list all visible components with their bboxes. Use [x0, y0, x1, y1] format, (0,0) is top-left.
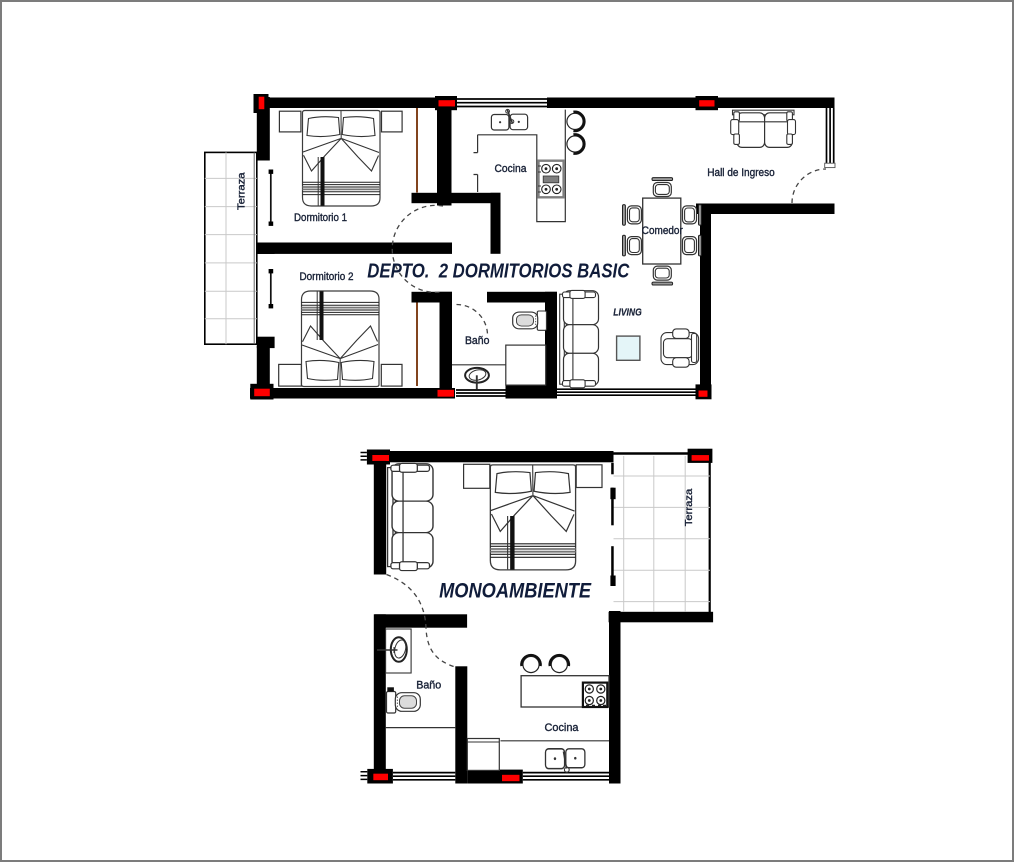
svg-text:MONOAMBIENTE: MONOAMBIENTE: [439, 579, 592, 602]
svg-text:Dormitorio 1: Dormitorio 1: [294, 212, 347, 224]
svg-text:Hall de Ingreso: Hall de Ingreso: [707, 167, 775, 179]
svg-text:Cocina: Cocina: [545, 722, 580, 734]
svg-text:Cocina: Cocina: [495, 163, 528, 175]
svg-text:Comedor: Comedor: [642, 225, 683, 237]
svg-text:Dormitorio 2: Dormitorio 2: [300, 271, 354, 283]
svg-text:Baño: Baño: [416, 679, 441, 691]
svg-text:Terraza: Terraza: [236, 172, 248, 210]
svg-text:DEPTO. 2 DORMITORIOS BASIC: DEPTO. 2 DORMITORIOS BASIC: [367, 259, 630, 282]
svg-text:Terraza: Terraza: [683, 489, 695, 527]
svg-text:Baño: Baño: [465, 335, 490, 347]
svg-text:LIVING: LIVING: [613, 308, 642, 319]
